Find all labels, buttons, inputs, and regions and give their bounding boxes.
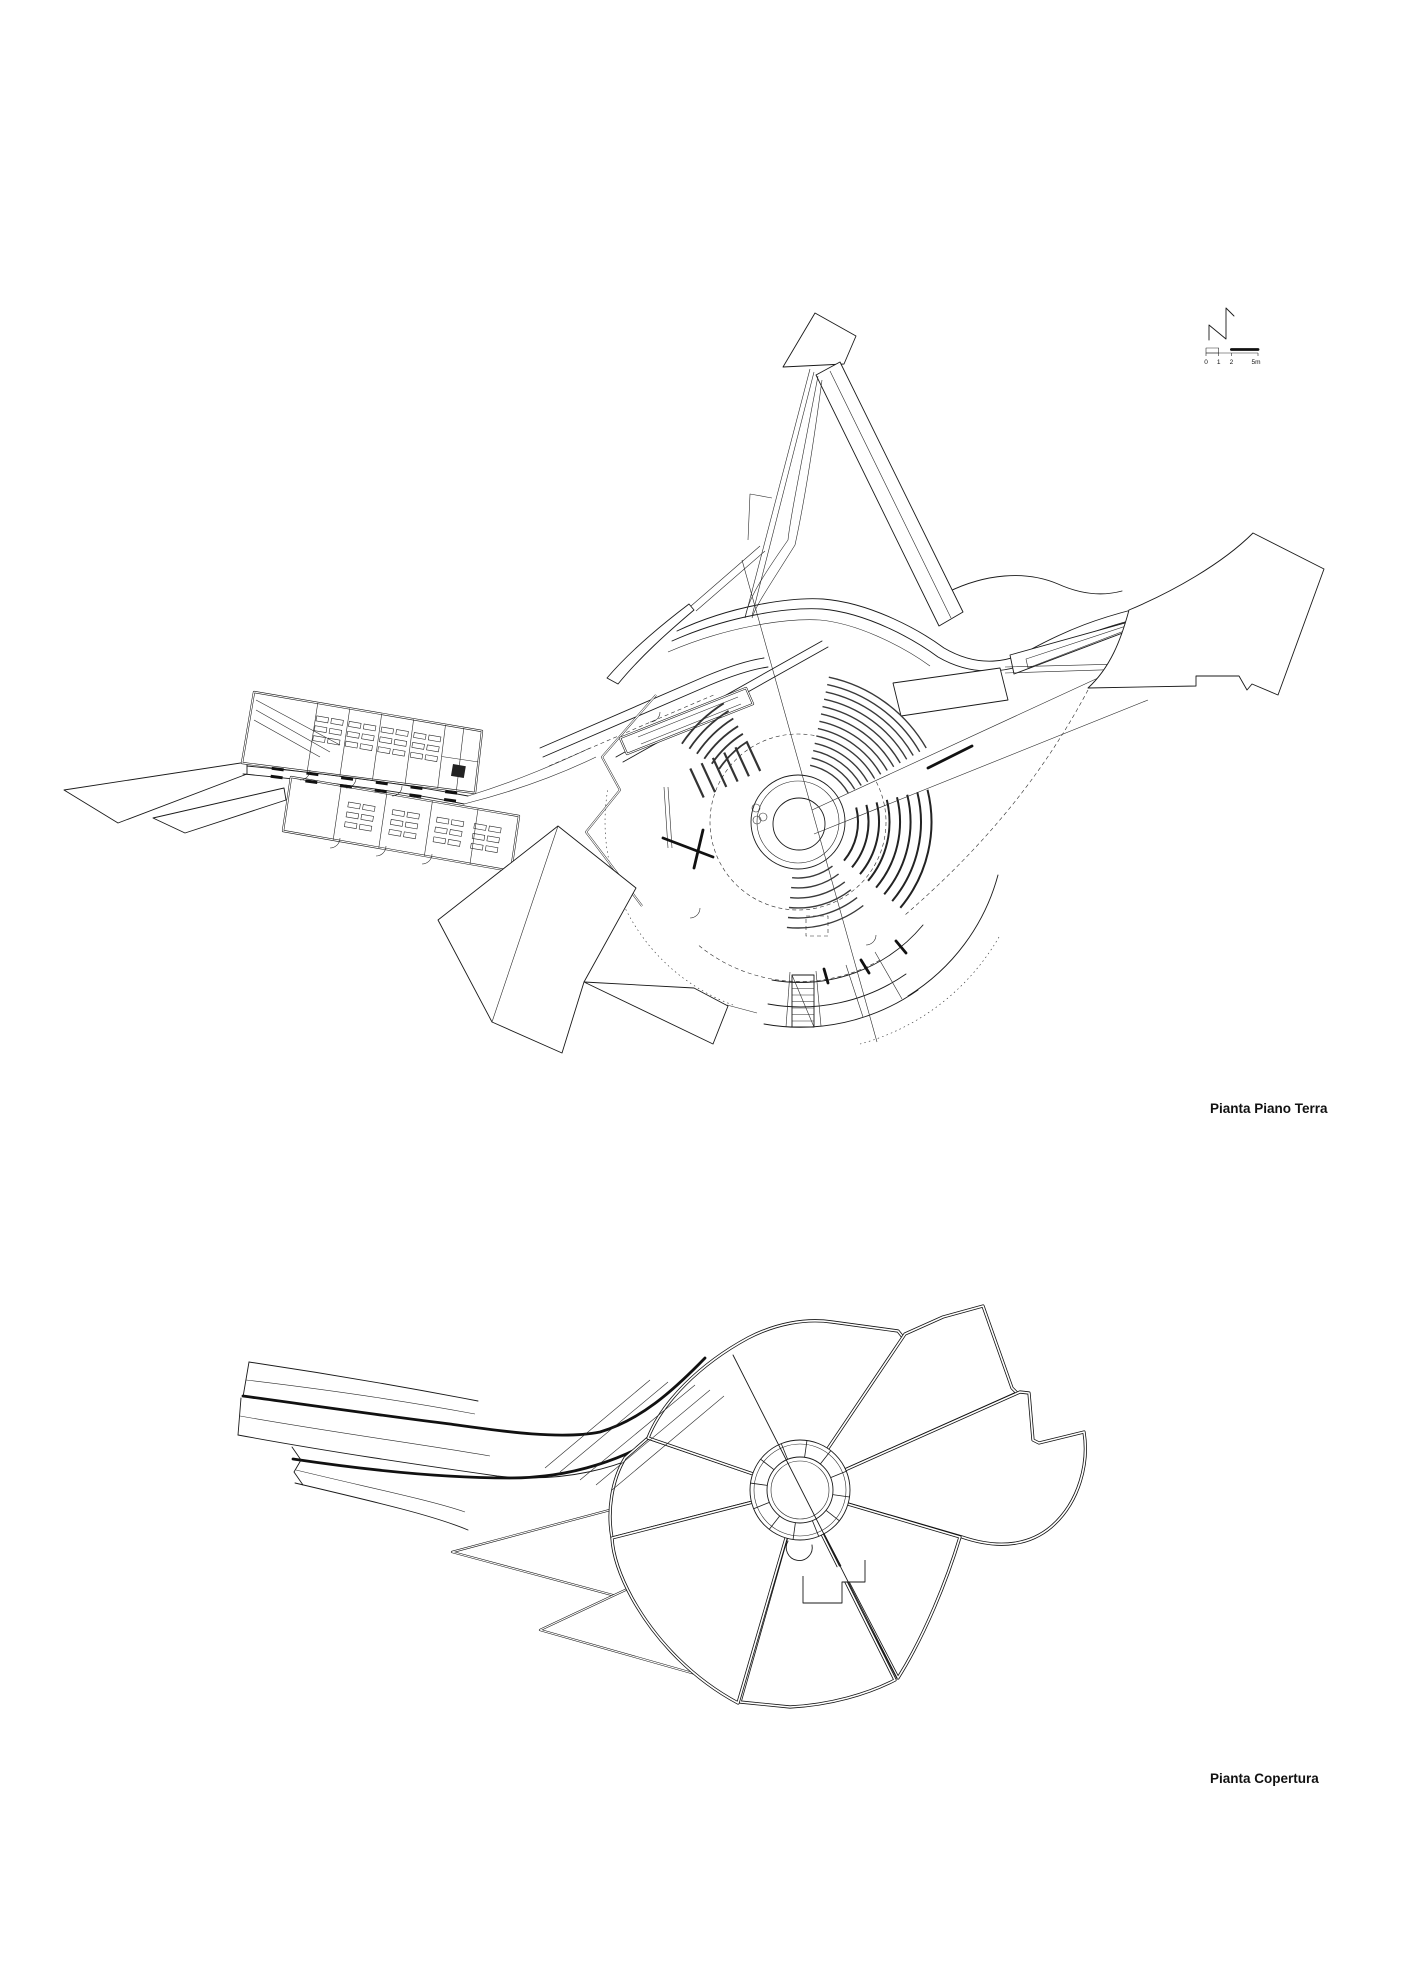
north-arrow-icon	[1209, 308, 1234, 340]
roof-plan-title: Pianta Copertura	[1210, 1771, 1319, 1786]
scale-tick-0: 0	[1204, 359, 1208, 366]
lower-room-partitions	[786, 952, 902, 1027]
scale-tick-1: 1	[1217, 359, 1221, 366]
ground-floor-plan	[64, 313, 1324, 1053]
ground-plan-title: Pianta Piano Terra	[1210, 1101, 1328, 1116]
thin-ramps	[745, 369, 822, 618]
roof-plan	[238, 1306, 1085, 1707]
roof-petals	[610, 1306, 1085, 1707]
scale-bar: 0 1 2 5m	[1204, 348, 1260, 366]
drawing-canvas: 0 1 2 5m	[0, 0, 1403, 1985]
tower-footprint	[783, 313, 856, 367]
east-head	[1088, 533, 1324, 695]
plan-sheet: 0 1 2 5m	[0, 0, 1403, 1985]
bridge-stairs	[690, 742, 760, 798]
scale-tick-2: 2	[1230, 359, 1234, 366]
tower-ramp-strip	[816, 362, 963, 626]
dark-service-cell	[451, 764, 466, 778]
scale-end-label: 5m	[1251, 359, 1260, 366]
